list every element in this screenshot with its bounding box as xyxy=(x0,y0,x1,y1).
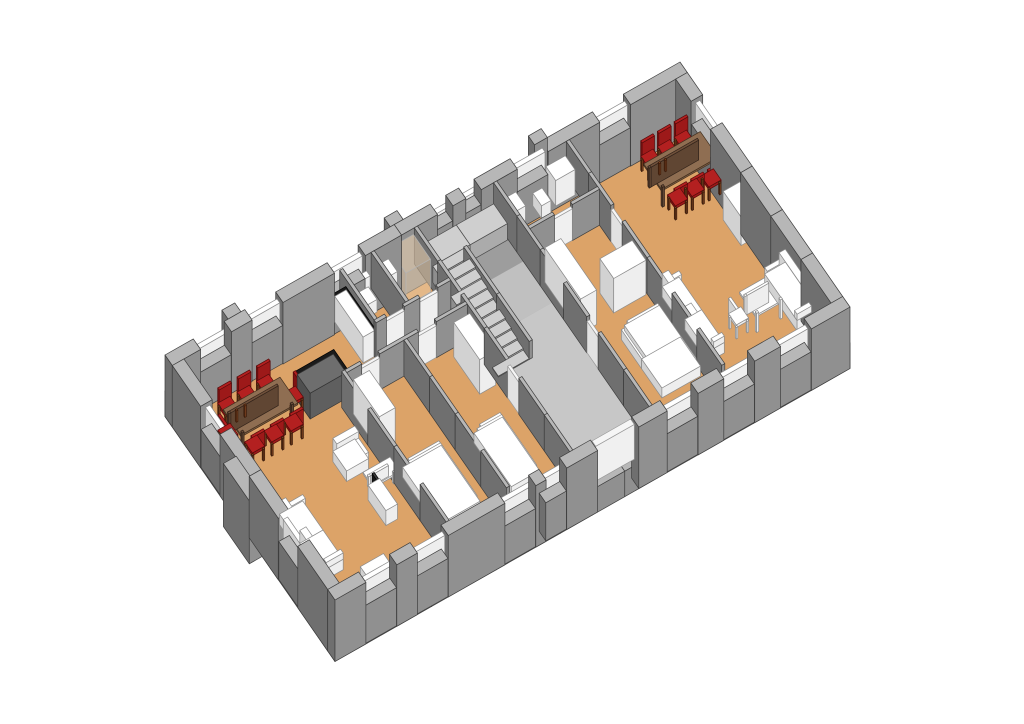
exterior-wall-southeast xyxy=(632,401,668,489)
dining-chair-leg xyxy=(244,404,247,418)
dining-chair-leg xyxy=(674,206,677,220)
dining-chair-leg xyxy=(658,162,661,176)
table-right-living-leg xyxy=(755,310,758,332)
dining-chair-leg xyxy=(641,158,644,172)
table-right-living-leg xyxy=(779,297,782,319)
dining-chair-leg xyxy=(301,425,304,439)
dining-chair-leg xyxy=(271,443,274,457)
dining-chair-leg xyxy=(235,409,238,423)
chair-right-living-leg xyxy=(735,325,738,339)
dining-chair-leg xyxy=(708,187,711,201)
dining-chair-leg xyxy=(691,197,694,211)
dining-chair-leg xyxy=(290,432,293,446)
dining-chair-leg xyxy=(282,436,285,450)
dining-chair-leg xyxy=(702,191,705,205)
dining-table-right-leg xyxy=(661,184,664,207)
dining-chair-leg xyxy=(719,181,722,195)
dining-table-right-leg xyxy=(648,165,651,188)
dining-chair-leg xyxy=(685,200,688,214)
dining-chair-leg xyxy=(668,197,671,211)
chair-right-living-leg xyxy=(746,319,749,333)
dining-chair-leg xyxy=(262,447,265,461)
chair-right-living-leg xyxy=(729,316,732,330)
dining-chair-leg xyxy=(664,158,667,172)
page xyxy=(0,0,1024,724)
